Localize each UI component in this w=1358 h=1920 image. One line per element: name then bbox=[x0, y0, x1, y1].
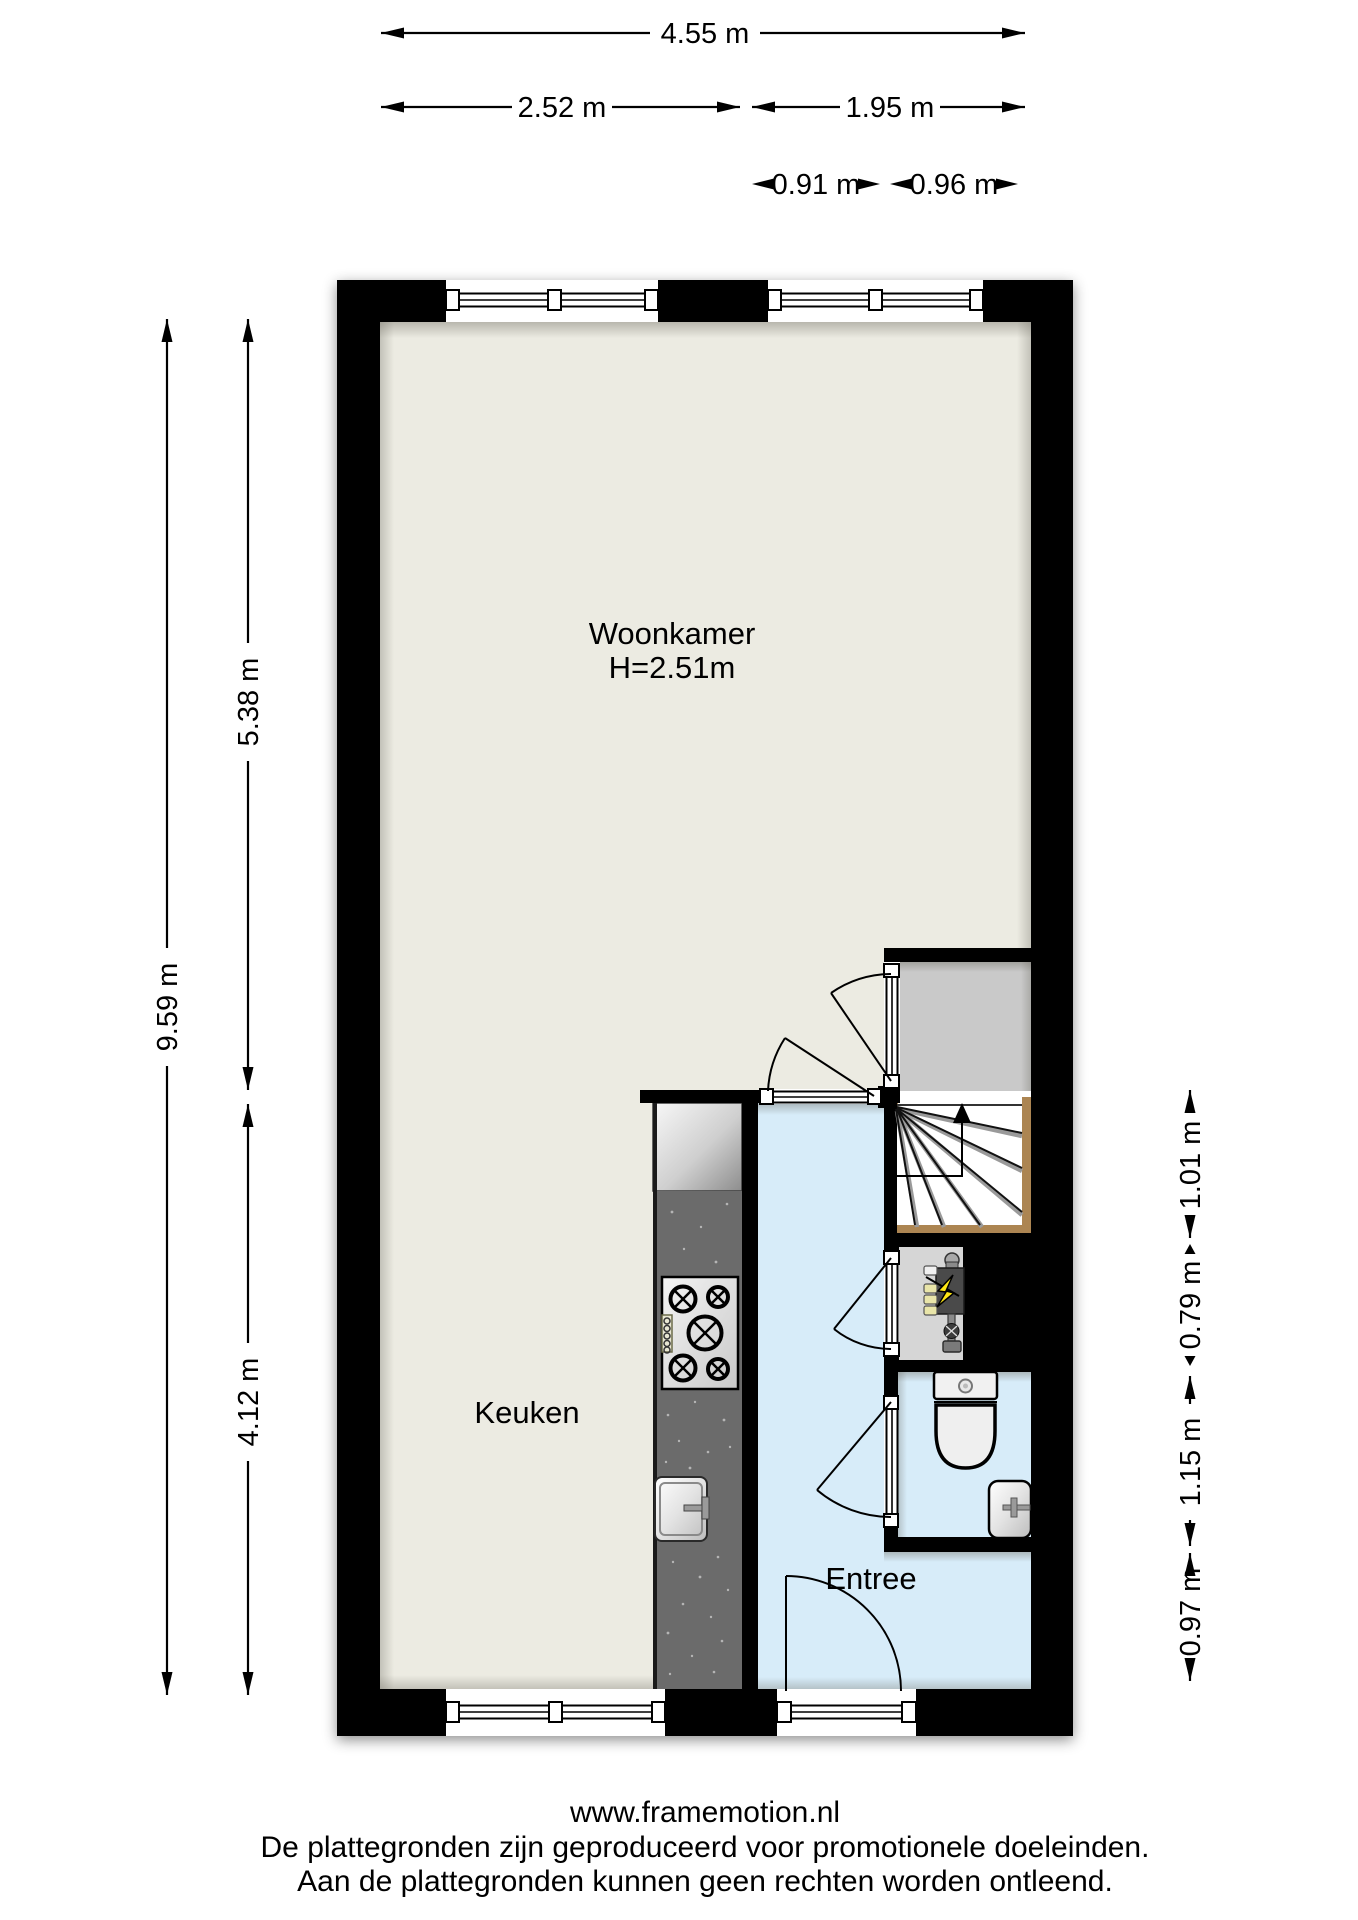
svg-text:0.97 m: 0.97 m bbox=[1175, 1568, 1207, 1657]
svg-text:www.framemotion.nl: www.framemotion.nl bbox=[569, 1796, 840, 1829]
svg-text:Aan de plattegronden kunnen ge: Aan de plattegronden kunnen geen rechten… bbox=[297, 1865, 1113, 1898]
svg-text:4.55 m: 4.55 m bbox=[661, 18, 750, 50]
svg-text:0.96 m: 0.96 m bbox=[910, 169, 999, 201]
svg-text:Keuken: Keuken bbox=[474, 1395, 579, 1430]
svg-text:2.52 m: 2.52 m bbox=[518, 92, 607, 124]
svg-text:0.91 m: 0.91 m bbox=[772, 169, 861, 201]
svg-text:De plattegronden zijn geproduc: De plattegronden zijn geproduceerd voor … bbox=[261, 1831, 1150, 1864]
svg-text:Entree: Entree bbox=[825, 1561, 916, 1596]
svg-text:5.38 m: 5.38 m bbox=[233, 658, 265, 747]
svg-text:1.15 m: 1.15 m bbox=[1175, 1418, 1207, 1507]
svg-text:0.79 m: 0.79 m bbox=[1175, 1261, 1207, 1350]
svg-text:1.95 m: 1.95 m bbox=[846, 92, 935, 124]
svg-text:1.01 m: 1.01 m bbox=[1175, 1121, 1207, 1210]
svg-text:9.59 m: 9.59 m bbox=[152, 963, 184, 1052]
svg-text:Woonkamer: Woonkamer bbox=[589, 616, 756, 651]
svg-text:4.12 m: 4.12 m bbox=[233, 1358, 265, 1447]
svg-text:H=2.51m: H=2.51m bbox=[609, 650, 736, 685]
